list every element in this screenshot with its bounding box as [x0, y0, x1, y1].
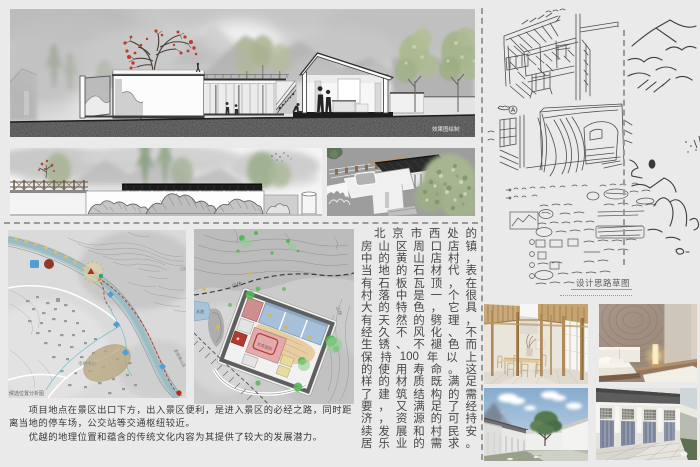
svg-text:山研: 山研	[180, 265, 186, 271]
svg-text:幸福中心: 幸福中心	[78, 360, 96, 367]
svg-text:效果图绘制: 效果图绘制	[432, 125, 460, 133]
svg-text:水池: 水池	[196, 308, 204, 314]
svg-text:山体: 山体	[231, 281, 242, 289]
